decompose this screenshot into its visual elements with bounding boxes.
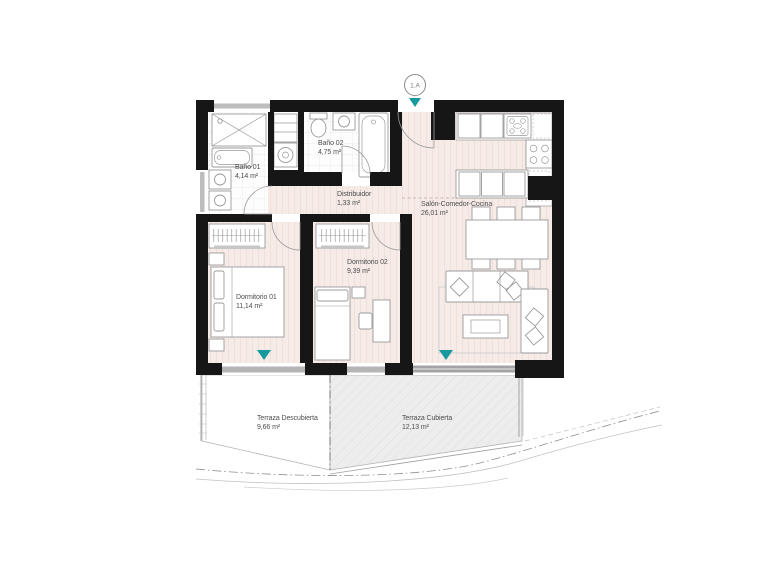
room-area: 12,13 m² [402, 424, 452, 433]
room-label-distribuidor: Distribuidor 1,33 m² [337, 191, 371, 209]
room-name: Baño 02 [318, 140, 343, 149]
entrance-marker-icon [409, 98, 421, 107]
room-label-dormitorio-01: Dormitorio 01 11,14 m² [236, 294, 277, 312]
room-area: 11,14 m² [236, 303, 277, 312]
room-name: Baño 01 [235, 164, 260, 173]
room-area: 26,01 m² [421, 210, 492, 219]
utility-cabinet [274, 114, 297, 142]
window-bath-1-left [196, 170, 208, 214]
washing-machine [274, 143, 297, 167]
window-livingroom-sliding [413, 363, 515, 375]
bathtub-2 [359, 113, 388, 177]
room-area: 1,33 m² [337, 200, 371, 209]
kitchen-island [456, 170, 528, 198]
room-label-terraza-cubierta: Terraza Cubierta 12,13 m² [402, 415, 452, 433]
sink-2 [333, 113, 355, 130]
coffee-table [463, 315, 508, 338]
floorplan-page: 1.A Baño 01 4,14 m² Baño 02 4,75 m² Dist… [0, 0, 768, 576]
room-label-salon: Salón-Comedor-Cocina 26,01 m² [421, 201, 492, 219]
room-name: Terraza Cubierta [402, 415, 452, 424]
room-name: Dormitorio 02 [347, 259, 388, 268]
room-label-bano-01: Baño 01 4,14 m² [235, 164, 260, 182]
toilet [310, 113, 327, 137]
room-name: Distribuidor [337, 191, 371, 200]
room-name: Dormitorio 01 [236, 294, 277, 303]
floorplan-svg: 1.A [0, 0, 768, 576]
entrance-marker: 1.A [405, 75, 426, 96]
room-area: 4,14 m² [235, 173, 260, 182]
shower [212, 114, 266, 146]
floor-hallway [268, 186, 402, 214]
bed-single [315, 287, 350, 360]
kitchen-counter [456, 113, 552, 140]
room-name: Salón-Comedor-Cocina [421, 201, 492, 210]
chaise-lounge [521, 289, 548, 353]
nightstand [352, 287, 365, 298]
window-bath-1-top [214, 100, 270, 112]
room-area: 9,39 m² [347, 268, 388, 277]
room-label-dormitorio-02: Dormitorio 02 9,39 m² [347, 259, 388, 277]
room-area: 9,66 m² [257, 424, 318, 433]
window-bedroom-2 [347, 363, 385, 375]
sofa [446, 271, 528, 302]
nightstand [209, 253, 224, 265]
room-area: 4,75 m² [318, 149, 343, 158]
entrance-marker-label: 1.A [410, 83, 420, 90]
wardrobe-1 [209, 224, 265, 249]
nightstand [209, 339, 224, 351]
desk [373, 300, 390, 342]
wardrobe-2 [316, 224, 369, 249]
room-label-bano-02: Baño 02 4,75 m² [318, 140, 343, 158]
desk-chair [359, 313, 372, 329]
kitchen-sink [526, 140, 552, 168]
room-label-terraza-descubierta: Terraza Descubierta 9,66 m² [257, 415, 318, 433]
dining-table [466, 220, 548, 259]
cooktop [504, 114, 531, 138]
window-bedroom-1 [222, 363, 305, 375]
room-name: Terraza Descubierta [257, 415, 318, 424]
